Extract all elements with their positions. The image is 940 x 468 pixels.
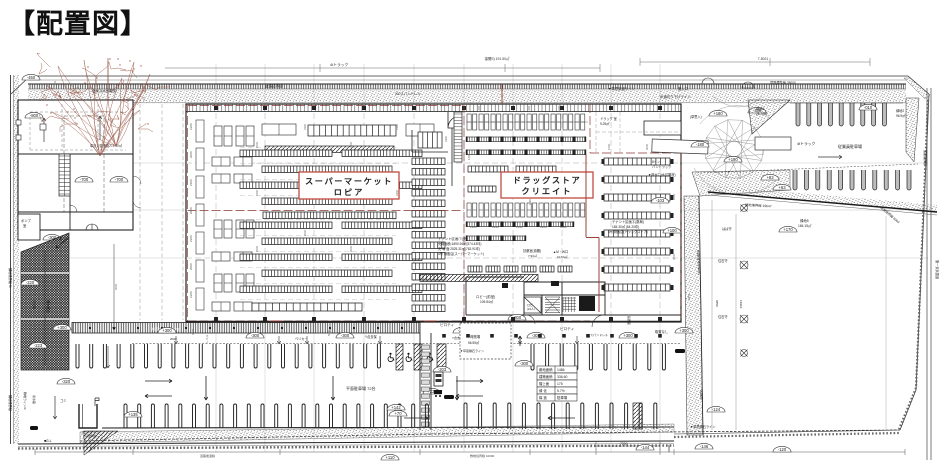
svg-text:用水路: 用水路 [32, 395, 37, 404]
svg-text:2300: 2300 [189, 123, 193, 130]
svg-text:1300: 1300 [470, 225, 477, 229]
svg-text:レベル: レベル [205, 334, 209, 343]
svg-text:-120: -120 [778, 447, 787, 452]
svg-text:道路後退線: 道路後退線 [200, 453, 215, 458]
svg-text:1300: 1300 [477, 105, 481, 112]
svg-text:歩道切り下げライン: 歩道切り下げライン [660, 94, 691, 99]
svg-text:緑地2: 緑地2 [896, 108, 904, 113]
svg-text:2000: 2000 [189, 263, 193, 270]
svg-text:緑 化: 緑 化 [539, 388, 547, 393]
svg-text:2200: 2200 [672, 193, 676, 200]
svg-text:【配置図】: 【配置図】 [8, 9, 148, 39]
svg-text:4号 物販店(ドラッグストア): 4号 物販店(ドラッグストア) [608, 229, 648, 234]
svg-text:漫水口(水圧開放): 漫水口(水圧開放) [92, 88, 116, 93]
svg-text:-220: -220 [26, 280, 35, 285]
svg-text:2000: 2000 [303, 229, 307, 236]
svg-text:ピロティ: ピロティ [440, 322, 454, 327]
svg-text:+180: +180 [713, 111, 723, 116]
svg-text:2000: 2000 [667, 445, 671, 452]
svg-text:2000: 2000 [349, 245, 353, 252]
svg-text:(草思入): (草思入) [690, 114, 702, 119]
svg-text:隣地ライン3t: 隣地ライン3t [23, 392, 28, 410]
svg-text:売 場 面:2525.31㎡(763.91坪): 売 場 面:2525.31㎡(763.91坪) [438, 246, 480, 251]
svg-text:7200: 7200 [620, 442, 628, 446]
svg-text:4号 物販店(スーパーマーケット): 4号 物販店(スーパーマーケット) [438, 251, 484, 256]
svg-text:2000: 2000 [189, 151, 193, 158]
svg-text:6850: 6850 [687, 293, 691, 300]
svg-text:(24人): (24人) [527, 307, 535, 311]
svg-text:道路境界線: 道路境界線 [265, 84, 283, 89]
svg-text:+190: +190 [728, 157, 738, 162]
svg-text:+135: +135 [128, 412, 138, 417]
svg-text:1600: 1600 [607, 143, 611, 150]
svg-text:-144: -144 [641, 445, 650, 450]
svg-text:2300: 2300 [349, 141, 353, 148]
svg-text:住石守: 住石守 [718, 258, 728, 263]
svg-text:10.54㎡: 10.54㎡ [557, 254, 568, 259]
svg-text:-300: -300 [251, 333, 260, 338]
svg-text:緑地3: 緑地3 [756, 106, 764, 111]
svg-text:住石守: 住石守 [718, 314, 728, 319]
svg-text:1200: 1200 [527, 105, 531, 112]
svg-text:▼荷水口(水位開放): ▼荷水口(水位開放) [648, 172, 676, 177]
svg-text:Y合支保: Y合支保 [365, 334, 378, 339]
svg-text:▲M・W口: ▲M・W口 [553, 250, 568, 254]
svg-text:ベリカー: ベリカー [295, 336, 308, 341]
svg-text:扶桑室(貴棚): 扶桑室(貴棚) [523, 248, 541, 253]
svg-text:+300: +300 [57, 325, 67, 330]
svg-text:+110: +110 [385, 455, 395, 460]
svg-text:ポンプ: ポンプ [21, 218, 31, 223]
svg-text:-103: -103 [656, 198, 665, 203]
svg-text:+170: +170 [783, 227, 793, 232]
svg-text:+142: +142 [391, 405, 401, 410]
svg-text:2300: 2300 [189, 179, 193, 186]
svg-text:-146: -146 [700, 444, 709, 449]
svg-text:緑地5: 緑地5 [800, 218, 809, 223]
svg-text:道路境界線: 道路境界線 [923, 150, 928, 165]
svg-text:2300: 2300 [255, 189, 259, 196]
svg-text:2000: 2000 [672, 253, 676, 260]
svg-text:7-8021: 7-8021 [758, 57, 769, 61]
svg-text:-450: -450 [27, 75, 36, 80]
svg-text:ゴミ: ゴミ [60, 398, 66, 403]
svg-text:スーパーマーケット: スーパーマーケット [305, 176, 393, 186]
svg-text:+70: +70 [394, 411, 402, 416]
svg-text:1300: 1300 [467, 153, 471, 160]
svg-text:5.7%: 5.7% [557, 389, 565, 393]
svg-text:従業員駐車場: 従業員駐車場 [838, 143, 862, 149]
svg-text:▼草思梨道ライン: ▼草思梨道ライン [608, 86, 636, 91]
svg-text:+300: +300 [162, 328, 172, 333]
svg-text:2000: 2000 [255, 141, 259, 148]
svg-text:▼草思縁石ライン: ▼草思縁石ライン [460, 348, 484, 353]
svg-text:2000: 2000 [645, 143, 649, 150]
svg-text:1190: 1190 [528, 199, 532, 205]
svg-text:スパンドレル: スパンドレル [590, 332, 608, 337]
svg-text:用水路: 用水路 [32, 300, 37, 309]
svg-text:1600: 1600 [557, 105, 561, 112]
svg-text:水路筋: 水路筋 [699, 390, 704, 400]
svg-text:2000: 2000 [114, 283, 118, 290]
svg-text:+83: +83 [766, 175, 774, 180]
svg-text:109.84㎡: 109.84㎡ [480, 299, 494, 304]
svg-text:境界標準線 28000: 境界標準線 28000 [770, 80, 796, 85]
svg-text:-300: -300 [520, 361, 529, 366]
svg-text:96.9㎡: 96.9㎡ [896, 113, 906, 118]
svg-text:+300: +300 [679, 328, 689, 333]
svg-text:-320: -320 [62, 379, 71, 384]
svg-text:ロピア: ロピア [334, 187, 365, 197]
svg-text:2000: 2000 [255, 245, 259, 252]
svg-text:2000: 2000 [189, 207, 193, 214]
svg-text:平面駐車場 72台: 平面駐車場 72台 [346, 385, 376, 391]
svg-text:26.70㎡: 26.70㎡ [756, 111, 768, 116]
svg-text:2400: 2400 [395, 189, 399, 196]
svg-text:荷捌場: 荷捌場 [470, 334, 481, 339]
svg-text:敷地面積: 敷地面積 [539, 367, 553, 372]
svg-text:5000: 5000 [327, 329, 331, 336]
svg-text:樹木移設: 樹木移設 [46, 300, 51, 314]
svg-text:336.60: 336.60 [557, 375, 567, 379]
svg-text:取置なし: 取置なし [655, 329, 668, 334]
svg-text:-010: -010 [864, 105, 873, 110]
svg-text:テナント区画②(薬局): テナント区画②(薬局) [612, 219, 644, 224]
svg-text:6850: 6850 [715, 300, 719, 307]
svg-text:敷地境界線 10000: 敷地境界線 10000 [470, 453, 495, 458]
svg-text:+300: +300 [623, 333, 633, 338]
svg-text:+63: +63 [778, 185, 786, 190]
svg-text:売場面積:1890.94㎡(574.43坪): 売場面積:1890.94㎡(574.43坪) [438, 241, 481, 246]
svg-text:2300: 2300 [189, 235, 193, 242]
svg-text:2490: 2490 [492, 225, 499, 229]
svg-text:階上面: 階上面 [539, 381, 550, 386]
svg-text:300スパンドレル: 300スパンドレル [395, 91, 421, 96]
svg-text:2100: 2100 [395, 123, 399, 130]
svg-text:投置面: 投置面 [627, 316, 632, 325]
svg-text:165.30㎡ (54.20坪): 165.30㎡ (54.20坪) [612, 224, 639, 229]
svg-text:2400: 2400 [444, 135, 448, 142]
svg-text:56.55㎡: 56.55㎡ [468, 340, 480, 345]
svg-text:9.25㎡: 9.25㎡ [600, 121, 610, 126]
svg-text:ロビー(前室): ロビー(前室) [476, 294, 495, 299]
svg-text:16910: 16910 [739, 300, 743, 309]
svg-text:バントラック: バントラック [652, 164, 671, 169]
svg-text:隣地境界線 3t: 隣地境界線 3t [8, 268, 13, 288]
svg-text:-203: -203 [438, 367, 447, 372]
svg-text:2300: 2300 [303, 123, 307, 130]
svg-text:1486: 1486 [557, 368, 565, 372]
svg-text:▼草思縁石ライン: ▼草思縁石ライン [690, 424, 715, 429]
svg-text:■G.L: ■G.L [44, 439, 52, 443]
svg-text:構 造: 構 造 [539, 395, 547, 400]
svg-text:+100: +100 [667, 228, 677, 233]
svg-text:-300: -300 [341, 333, 350, 338]
svg-text:クリエイト: クリエイト [522, 186, 573, 196]
svg-text:175: 175 [557, 382, 563, 386]
svg-text:7.93㎡: 7.93㎡ [528, 253, 537, 258]
svg-text:4tトラック: 4tトラック [797, 141, 816, 146]
svg-text:184.15㎡: 184.15㎡ [798, 223, 812, 228]
svg-text:はは守: はは守 [722, 226, 732, 231]
svg-text:-223: -223 [34, 343, 43, 348]
svg-text:ピロティ: ピロティ [560, 326, 574, 331]
svg-text:1200: 1200 [540, 225, 547, 229]
svg-text:ドラッグストア: ドラッグストア [513, 175, 582, 185]
svg-text:2300: 2300 [189, 291, 193, 298]
svg-text:8トン: 8トン [652, 160, 660, 164]
svg-text:-124: -124 [712, 407, 721, 412]
svg-text:隣地境界線: 隣地境界線 [8, 395, 13, 412]
svg-text:ドラッグ 室: ドラッグ 室 [600, 116, 617, 121]
svg-text:-800: -800 [30, 113, 39, 118]
svg-text:1190: 1190 [516, 225, 523, 229]
svg-text:-180: -180 [696, 142, 705, 147]
svg-text:搬入口: 搬入口 [678, 86, 688, 91]
svg-text:接開S) 191.50㎡: 接開S) 191.50㎡ [485, 56, 510, 61]
svg-text:-700: -700 [80, 177, 89, 182]
svg-text:9000: 9000 [191, 328, 195, 335]
svg-text:駐車場: 駐車場 [557, 395, 568, 400]
svg-text:建築面積: 建築面積 [539, 374, 553, 379]
svg-text:4tトラック: 4tトラック [330, 62, 349, 67]
svg-text:第一京浜国道: 第一京浜国道 [935, 260, 940, 280]
svg-text:-700: -700 [115, 177, 124, 182]
svg-text:1600: 1600 [560, 225, 567, 229]
